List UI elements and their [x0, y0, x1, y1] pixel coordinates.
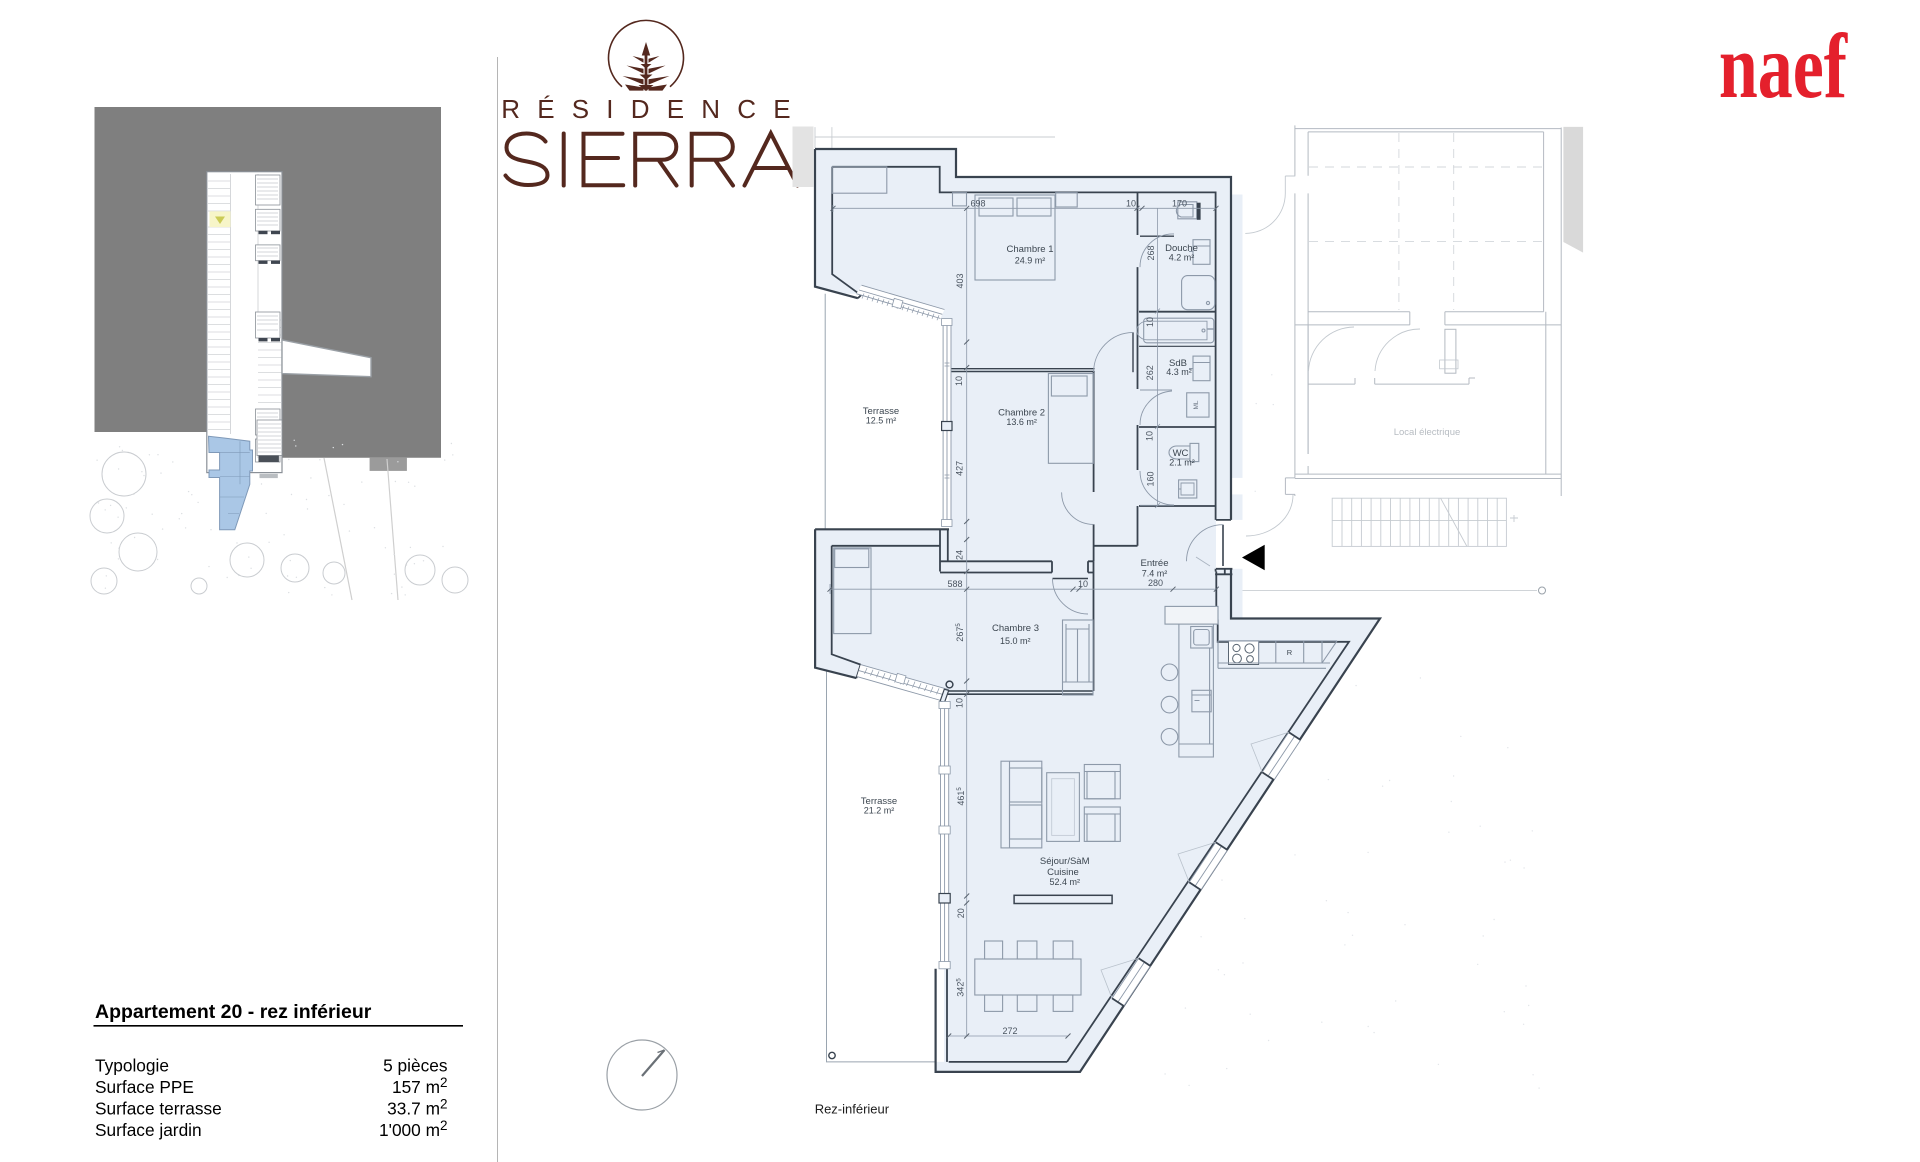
svg-text:10: 10: [954, 376, 964, 386]
svg-text:Chambre 1: Chambre 1: [1007, 244, 1054, 255]
svg-text:10: 10: [1145, 317, 1155, 327]
svg-text:698: 698: [970, 198, 985, 208]
svg-text:2.1 m²: 2.1 m²: [1169, 458, 1195, 468]
svg-text:262: 262: [1145, 365, 1155, 380]
svg-text:Surface PPE: Surface PPE: [95, 1077, 194, 1097]
svg-text:Surface jardin: Surface jardin: [95, 1120, 202, 1140]
svg-text:Appartement 20 - rez inférieur: Appartement 20 - rez inférieur: [95, 1001, 372, 1023]
svg-text:Local électrique: Local électrique: [1394, 427, 1461, 438]
svg-text:naef: naef: [1719, 15, 1848, 117]
svg-text:10: 10: [1126, 198, 1136, 208]
svg-text:ML: ML: [1193, 400, 1200, 409]
svg-text:588: 588: [947, 579, 962, 589]
svg-text:10: 10: [1078, 579, 1088, 589]
svg-text:Entrée: Entrée: [1141, 558, 1169, 569]
svg-text:24.9 m²: 24.9 m²: [1015, 256, 1046, 266]
svg-text:170: 170: [1172, 198, 1187, 208]
svg-text:15.0 m²: 15.0 m²: [1000, 636, 1031, 646]
svg-text:Typologie: Typologie: [95, 1056, 169, 1076]
svg-text:12.5 m²: 12.5 m²: [866, 416, 897, 426]
svg-text:403: 403: [955, 273, 965, 288]
svg-text:10: 10: [1145, 431, 1155, 441]
svg-text:10: 10: [955, 698, 965, 708]
svg-text:160: 160: [1146, 471, 1156, 486]
svg-text:1'000 m2: 1'000 m2: [379, 1118, 447, 1140]
svg-text:Rez-inférieur: Rez-inférieur: [815, 1102, 890, 1117]
svg-text:280: 280: [1148, 578, 1163, 588]
svg-text:268: 268: [1146, 245, 1156, 260]
svg-text:4.2 m²: 4.2 m²: [1169, 253, 1195, 263]
svg-text:Séjour/SàM: Séjour/SàM: [1040, 856, 1090, 867]
svg-text:Surface terrasse: Surface terrasse: [95, 1099, 222, 1119]
svg-text:33.7 m2: 33.7 m2: [387, 1097, 447, 1119]
svg-text:157 m2: 157 m2: [392, 1075, 448, 1097]
svg-text:Chambre 3: Chambre 3: [992, 623, 1039, 634]
svg-text:20: 20: [956, 908, 966, 918]
svg-text:24: 24: [954, 550, 964, 560]
svg-text:7.4 m²: 7.4 m²: [1142, 569, 1168, 579]
svg-text:5 pièces: 5 pièces: [383, 1056, 448, 1076]
svg-text:427: 427: [954, 461, 964, 476]
svg-text:272: 272: [1002, 1026, 1017, 1036]
svg-text:21.2 m²: 21.2 m²: [864, 806, 895, 816]
svg-text:RÉSIDENCE: RÉSIDENCE: [501, 94, 808, 124]
svg-text:52.4 m²: 52.4 m²: [1049, 877, 1080, 887]
svg-text:4.3 m²: 4.3 m²: [1166, 367, 1192, 377]
svg-text:13.6 m²: 13.6 m²: [1006, 417, 1037, 427]
svg-text:R: R: [1287, 648, 1293, 657]
